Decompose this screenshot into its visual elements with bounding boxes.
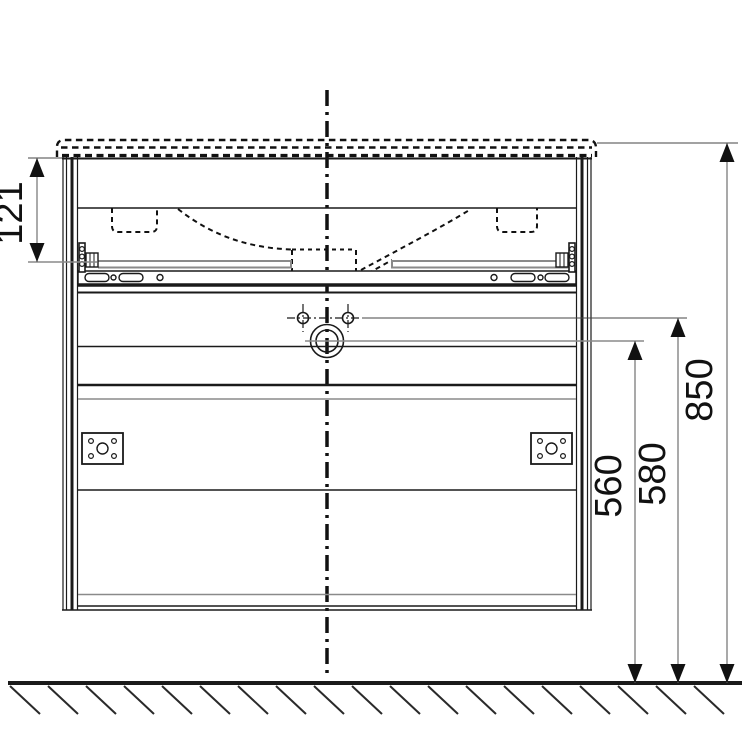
- mounting-plate-left: [82, 433, 123, 464]
- slide-bracket-right: [556, 243, 575, 272]
- dimension-560: 560: [305, 341, 644, 683]
- dimension-850: 850: [597, 143, 738, 683]
- dimension-label-121: 121: [0, 181, 31, 244]
- slide-bracket-left: [79, 243, 98, 272]
- mounting-plate-right: [531, 433, 572, 464]
- vanity-drawing: 121 560 580 850: [0, 0, 750, 750]
- faucet-holes: [287, 304, 362, 332]
- washbasin-outline: [57, 140, 596, 157]
- dimension-label-560: 560: [588, 454, 630, 517]
- dimension-580: 580: [362, 318, 687, 683]
- ground-hatch: [8, 683, 742, 714]
- technical-drawing-canvas: 121 560 580 850: [0, 0, 750, 750]
- dimension-label-850: 850: [679, 358, 721, 421]
- dimension-label-580: 580: [632, 442, 674, 505]
